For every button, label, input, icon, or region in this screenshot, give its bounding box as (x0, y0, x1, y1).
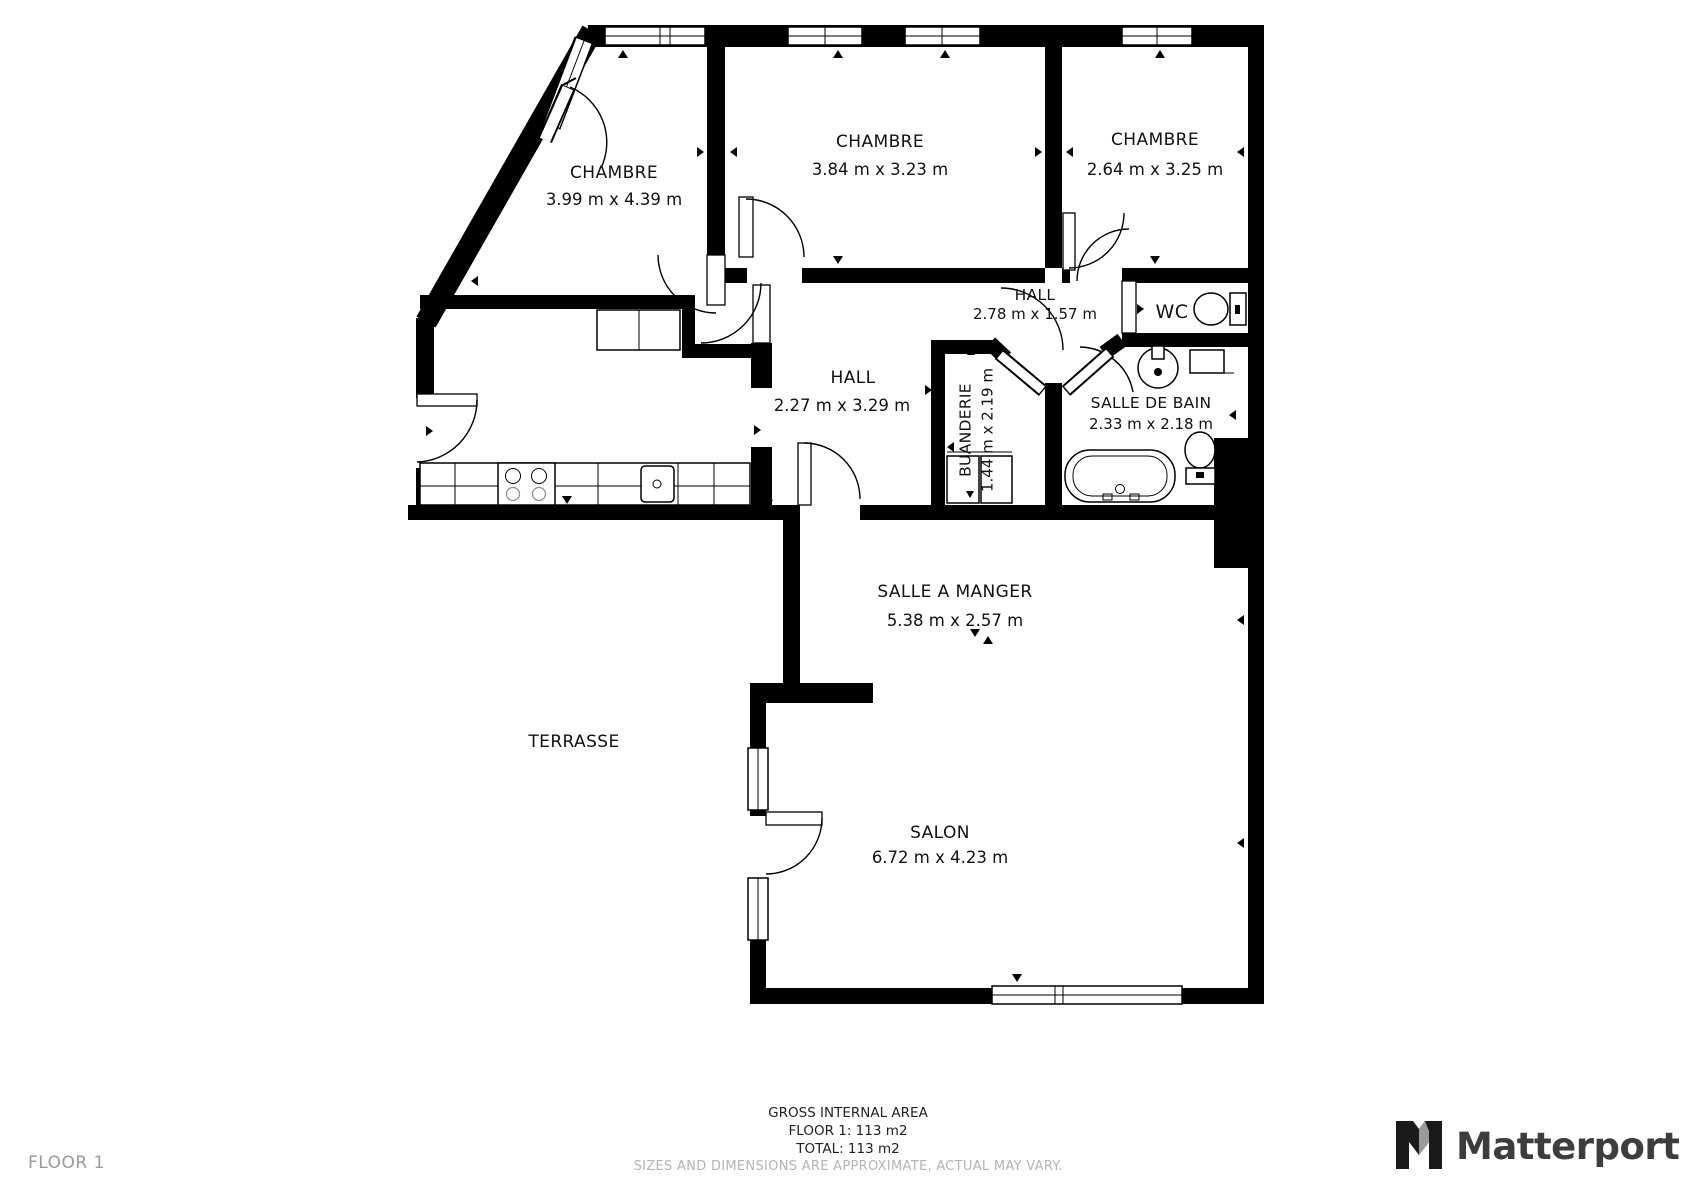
footer: GROSS INTERNAL AREA FLOOR 1: 113 m2 TOTA… (28, 1105, 1062, 1174)
window-salon-left-upper (748, 748, 768, 810)
bathroom-cabinet (1190, 350, 1234, 373)
stove (498, 463, 555, 505)
bathroom-sink (1138, 346, 1178, 388)
footer-gross-area-title: GROSS INTERNAL AREA (768, 1105, 928, 1121)
room-dims-salle-de-bain: 2.33 m x 2.18 m (1089, 415, 1213, 433)
window-chambre-1-top (605, 27, 705, 45)
room-label-hall-upper: HALL (1015, 286, 1056, 304)
footer-total-area: TOTAL: 113 m2 (795, 1141, 899, 1157)
room-label-wc: WC (1155, 301, 1188, 323)
door-chambre-3 (1063, 213, 1124, 270)
room-dims-hall-lower: 2.27 m x 3.29 m (774, 396, 910, 415)
room-dims-chambre-3: 2.64 m x 3.25 m (1087, 160, 1223, 179)
door-hall-salle-a-manger (798, 443, 860, 505)
room-dims-salon: 6.72 m x 4.23 m (872, 848, 1008, 867)
footer-disclaimer: SIZES AND DIMENSIONS ARE APPROXIMATE, AC… (634, 1159, 1063, 1174)
room-label-salon: SALON (910, 823, 970, 843)
kitchen-counter (420, 463, 750, 505)
matterport-logo-text: Matterport (1456, 1125, 1679, 1168)
room-label-chambre-3: CHAMBRE (1111, 130, 1199, 150)
room-label-salle-de-bain: SALLE DE BAIN (1091, 394, 1212, 412)
room-label-chambre-1: CHAMBRE (570, 163, 658, 183)
wc-toilet (1194, 293, 1246, 325)
closet (597, 310, 680, 350)
window-chambre-2-top-right (905, 27, 980, 45)
matterport-logo-icon (1396, 1121, 1442, 1169)
floor-label: FLOOR 1 (28, 1153, 105, 1173)
room-dims-buanderie: 1.44 m x 2.19 m (979, 368, 997, 492)
room-dims-salle-a-manger: 5.38 m x 2.57 m (887, 611, 1023, 630)
floor-plan-page: CHAMBRE 3.99 m x 4.39 m CHAMBRE 3.84 m x… (0, 0, 1696, 1200)
window-chambre-2-top-left (788, 27, 862, 45)
room-dims-chambre-2: 3.84 m x 3.23 m (812, 160, 948, 179)
room-label-salle-a-manger: SALLE A MANGER (877, 582, 1032, 602)
room-label-terrasse: TERRASSE (527, 732, 619, 752)
window-chambre-3-top (1122, 27, 1192, 45)
room-dims-chambre-1: 3.99 m x 4.39 m (546, 190, 682, 209)
kitchen-sink (641, 466, 674, 502)
window-salon-bottom (992, 986, 1182, 1004)
room-dims-hall-upper: 2.78 m x 1.57 m (973, 305, 1097, 323)
footer-floor-area: FLOOR 1: 113 m2 (789, 1123, 908, 1139)
room-label-buanderie: BUANDERIE (957, 383, 975, 477)
window-salon-left-lower (748, 878, 768, 940)
branding: Matterport (1396, 1121, 1679, 1169)
bathroom-toilet (1185, 432, 1215, 484)
floor-plan-svg: CHAMBRE 3.99 m x 4.39 m CHAMBRE 3.84 m x… (0, 0, 1696, 1200)
opening-cuisine-lower (749, 388, 774, 447)
door-salon-terrasse (766, 812, 822, 874)
room-label-hall-lower: HALL (831, 368, 876, 388)
door-chambre-2 (739, 197, 804, 257)
door-salle-de-bain (1066, 347, 1133, 392)
room-label-chambre-2: CHAMBRE (836, 132, 924, 152)
bathtub (1065, 450, 1175, 502)
